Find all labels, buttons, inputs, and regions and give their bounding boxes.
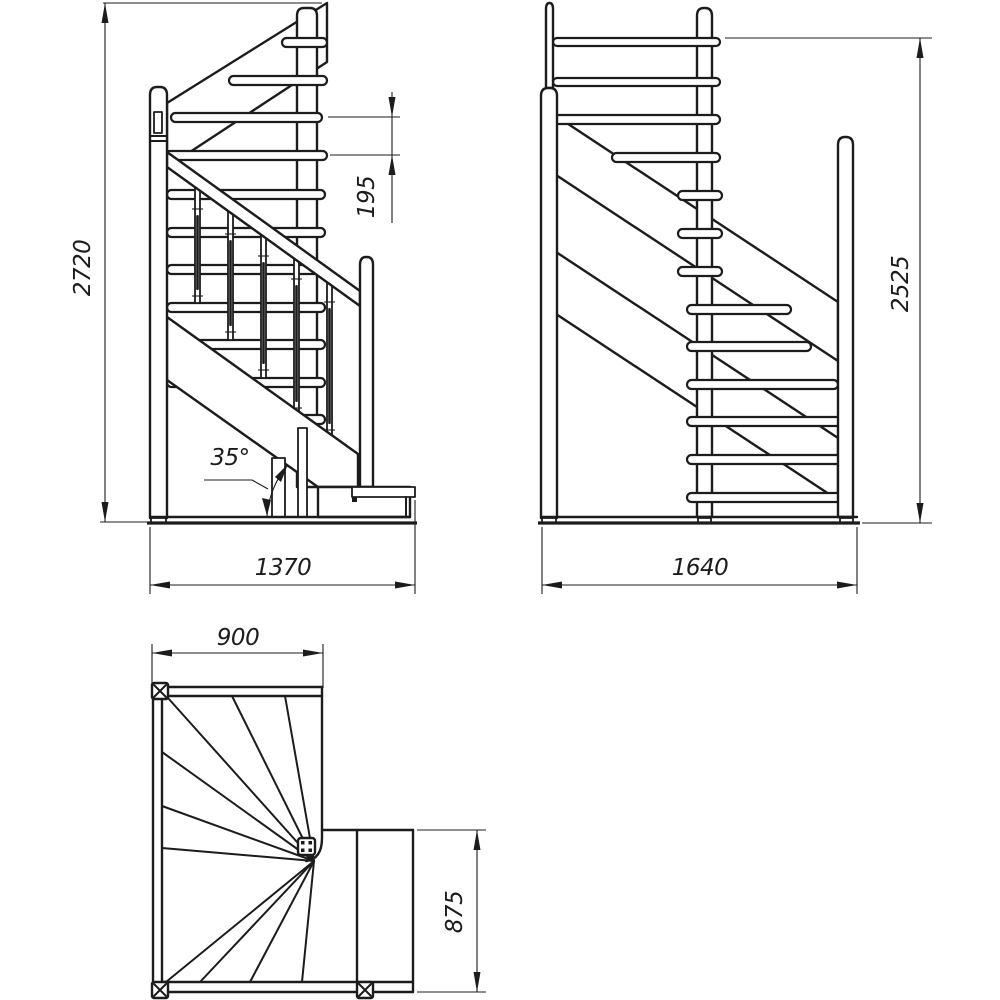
staircase-drawing: 2720 195 1370 35°	[0, 0, 1000, 1000]
dim-label-900: 900	[217, 625, 259, 651]
plan-landing	[322, 830, 413, 992]
first-step	[318, 487, 415, 517]
baluster	[192, 184, 203, 303]
dim-label-1640: 1640	[672, 555, 729, 581]
dim-label-2525: 2525	[888, 256, 914, 313]
center-post-leg	[298, 428, 307, 517]
plan-center-post	[298, 838, 315, 855]
plan-corner-post	[357, 982, 373, 998]
plan-corner-post	[152, 683, 168, 699]
baluster	[324, 280, 335, 434]
side-right-post	[838, 137, 853, 517]
plan-winder-treads	[162, 696, 314, 982]
plan-corner-post	[152, 982, 168, 998]
side-elevation-view	[538, 3, 860, 523]
plan-view	[152, 683, 413, 998]
drawing-sheet: 2720 195 1370 35°	[0, 0, 1000, 1000]
dim-label-35deg: 35°	[210, 445, 249, 471]
dim-plan-width: 900	[152, 625, 323, 688]
floor-line-side	[538, 517, 860, 523]
dim-label-875: 875	[442, 891, 468, 933]
dim-plan-depth: 875	[417, 830, 486, 992]
right-newel-post	[360, 257, 373, 487]
dim-label-2720: 2720	[70, 240, 96, 297]
floor-line-front	[147, 517, 417, 523]
dim-label-195: 195	[354, 176, 380, 218]
front-elevation-view	[147, 3, 417, 523]
left-newel-post	[150, 87, 167, 518]
side-top-rails	[553, 38, 720, 86]
dim-front-riser: 195	[328, 92, 400, 223]
dim-label-1370: 1370	[255, 555, 312, 581]
dim-side-width: 1640	[542, 527, 857, 594]
